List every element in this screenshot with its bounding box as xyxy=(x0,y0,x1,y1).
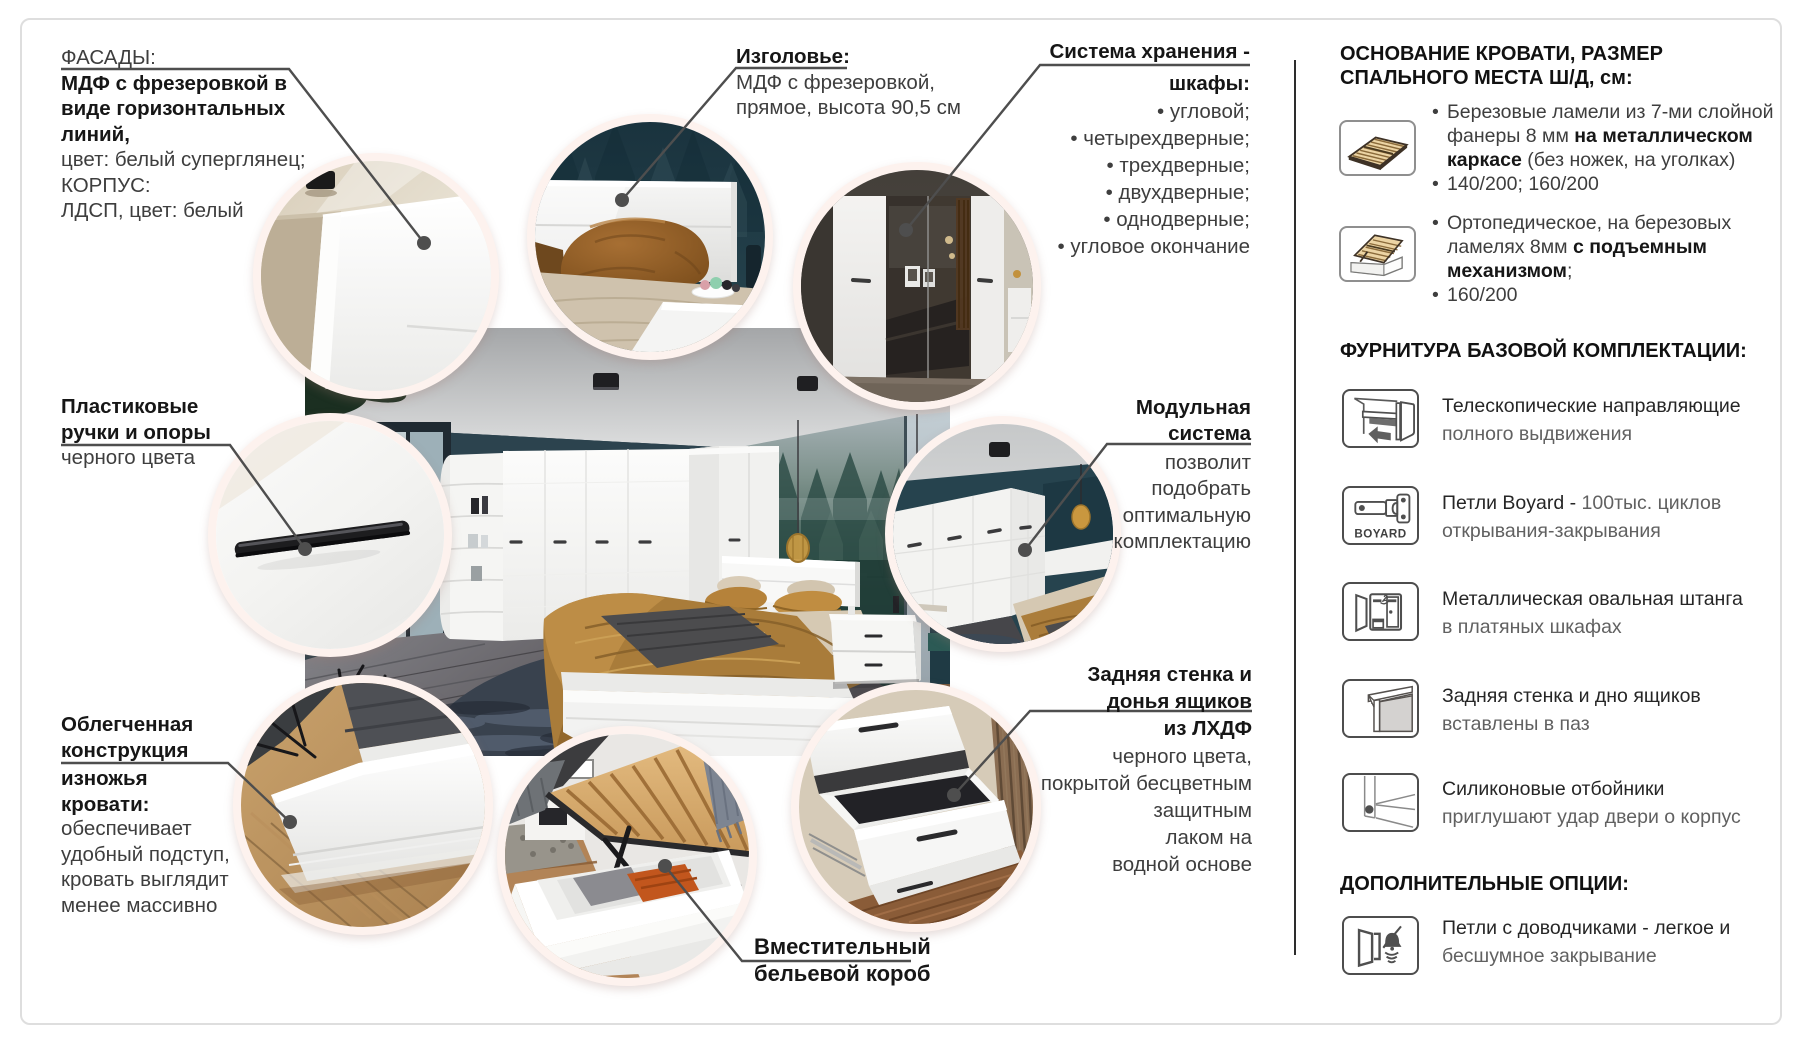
svg-text:BOYARD: BOYARD xyxy=(1354,527,1406,540)
